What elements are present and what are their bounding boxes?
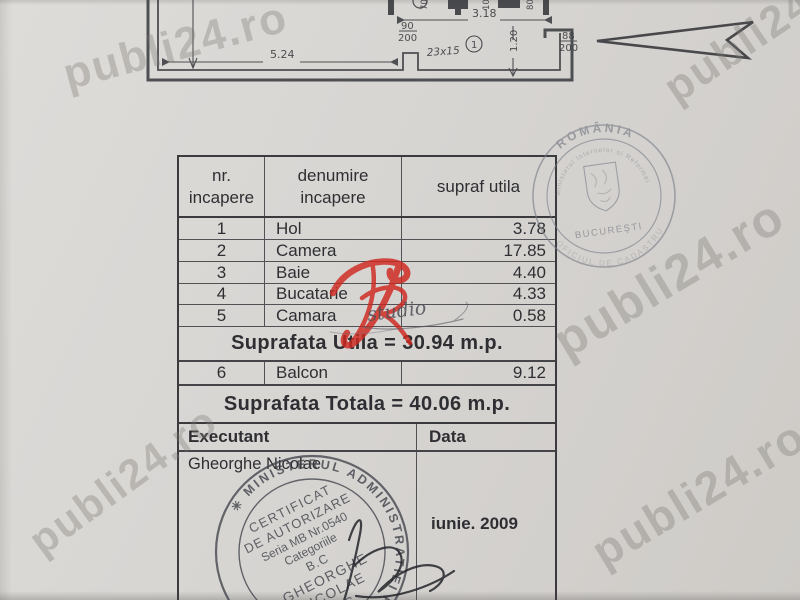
- dim-label: 3.18: [472, 7, 497, 20]
- executant-header-row: Executant Data: [179, 424, 555, 452]
- suprafata-totala-total: Suprafata Totala = 40.06 m.p.: [179, 386, 555, 424]
- coat-of-arms-shield: [584, 162, 622, 213]
- room-areas-table: nr. incapere denumire incapere supraf ut…: [177, 155, 557, 600]
- dim-label: 1.20: [509, 30, 520, 52]
- floor-plan-labels: 5.24 3.18 1.20 90 200 88 200 70/200 100/…: [270, 0, 578, 61]
- wall-pillars: [388, 0, 549, 15]
- room-number: 1: [179, 218, 265, 239]
- room-name: Balcon: [265, 362, 402, 384]
- stamp-ministry-text: Ministerul Internelor si Reformei: [549, 141, 651, 197]
- plan-arrow-icon: [597, 22, 753, 58]
- watermark: publi24.ro: [58, 0, 293, 100]
- table-row: 4 Bucatarie 4.33: [179, 284, 555, 305]
- table-row-balcon: 6 Balcon 9.12: [179, 362, 555, 386]
- header-nr-incapere: nr. incapere: [179, 157, 265, 216]
- room-number: 2: [179, 240, 265, 261]
- table-row: 3 Baie 4.40: [179, 262, 555, 284]
- watermark: publi24.ro: [543, 187, 795, 370]
- dimension-3-18: [397, 16, 552, 24]
- watermark: publi24.ro: [582, 408, 800, 578]
- room-name: Camera: [265, 240, 402, 261]
- room-number: 6: [179, 362, 265, 384]
- floor-plan: [148, 0, 753, 80]
- suprafata-utila-total: Suprafata Utila = 30.94 m.p.: [179, 327, 555, 362]
- door-size: 90: [401, 21, 414, 32]
- header-supraf-utila: supraf utila: [402, 157, 555, 216]
- room-area: 3.78: [402, 218, 555, 239]
- door-size: 88: [562, 31, 575, 42]
- room-area: 4.40: [402, 262, 555, 283]
- room-area: 9.12: [402, 362, 555, 384]
- executant-name: Gheorghe Nicolae: [179, 452, 417, 600]
- room-number: 5: [179, 305, 265, 326]
- dimension-5-24: [162, 0, 398, 68]
- room-area: 0.58: [402, 305, 555, 326]
- signature-row: Gheorghe Nicolae iunie. 2009: [179, 452, 555, 600]
- room-name: Baie: [265, 262, 402, 283]
- door-size: 200: [559, 43, 578, 54]
- header-line: supraf utila: [437, 176, 520, 197]
- watermark: publi24.ro: [655, 0, 800, 113]
- stair-label: 23x15: [426, 45, 460, 59]
- header-line: incapere: [189, 188, 254, 207]
- room-name: Camara: [265, 305, 402, 326]
- stamp-city-text: BUCUREŞTI: [574, 221, 643, 241]
- date-value: iunie. 2009: [417, 452, 555, 600]
- table-header-row: nr. incapere denumire incapere supraf ut…: [179, 157, 555, 218]
- table-row: 2 Camera 17.85: [179, 240, 555, 262]
- data-label: Data: [417, 424, 555, 450]
- dim-label: 5.24: [270, 48, 295, 61]
- header-line: nr.: [212, 166, 231, 185]
- room-number: 3: [179, 262, 265, 283]
- stamp-ring-lower-text: OFICIUL DE CADASTRU: [554, 224, 670, 275]
- dimension-1-20: [509, 26, 517, 76]
- window-size: 80/200: [526, 0, 536, 10]
- window-size: 100/200: [482, 0, 492, 10]
- room-number: 4: [179, 284, 265, 304]
- window-size: 70/200: [420, 0, 430, 10]
- room-number-bubble: 1: [471, 40, 477, 51]
- header-denumire: denumire incapere: [265, 157, 402, 216]
- table-row: 5 Camara 0.58: [179, 305, 555, 327]
- room-area: 17.85: [402, 240, 555, 261]
- room-name: Bucatarie: [265, 284, 402, 304]
- executant-label: Executant: [179, 424, 417, 450]
- scanned-document-page: nr. incapere denumire incapere supraf ut…: [0, 0, 800, 600]
- header-line: incapere: [300, 188, 365, 207]
- stamp-country-text: ROMÂNIA: [551, 115, 639, 153]
- table-row: 1 Hol 3.78: [179, 218, 555, 240]
- door-size: 200: [398, 33, 417, 44]
- room-area: 4.33: [402, 284, 555, 304]
- header-line: denumire: [298, 166, 369, 185]
- room-name: Hol: [265, 218, 402, 239]
